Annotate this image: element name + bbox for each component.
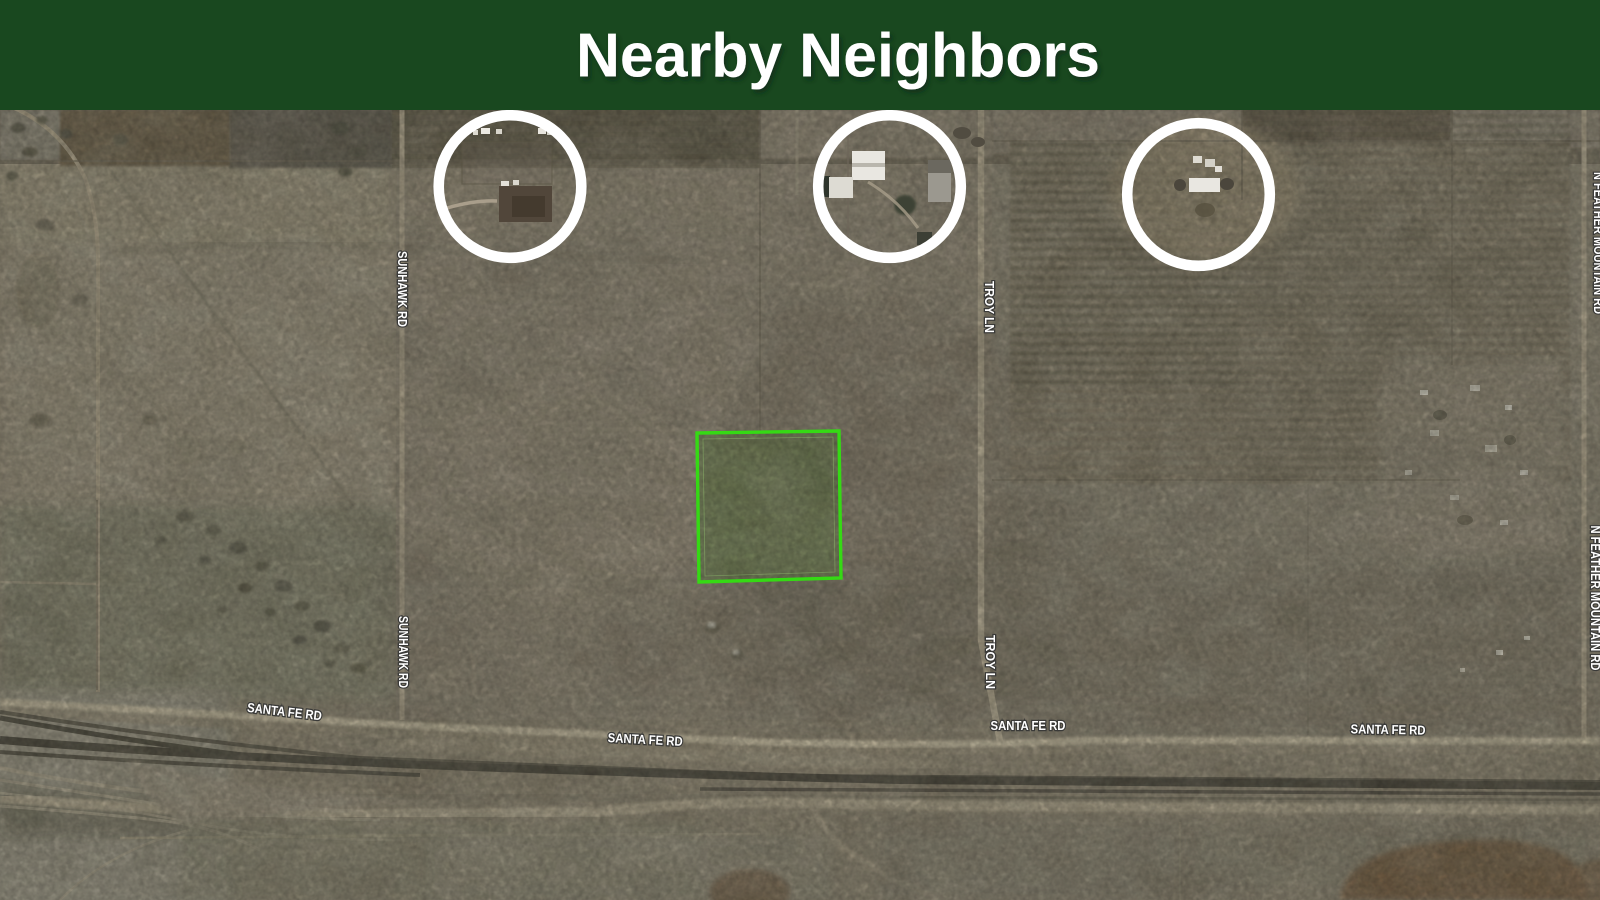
svg-text:N FEATHER MOUNTAIN RD: N FEATHER MOUNTAIN RD [1591, 172, 1600, 314]
svg-text:SANTA FE RD: SANTA FE RD [1350, 721, 1425, 737]
svg-text:N FEATHER MOUNTAIN RD: N FEATHER MOUNTAIN RD [1588, 526, 1600, 671]
svg-text:SUNHAWK RD: SUNHAWK RD [395, 251, 410, 327]
svg-text:SUNHAWK RD: SUNHAWK RD [396, 616, 411, 688]
svg-text:SANTA FE RD: SANTA FE RD [991, 718, 1066, 733]
svg-text:TROY LN: TROY LN [983, 635, 998, 689]
svg-text:Nearby Neighbors: Nearby Neighbors [576, 22, 1100, 91]
svg-text:TROY LN: TROY LN [982, 281, 997, 333]
